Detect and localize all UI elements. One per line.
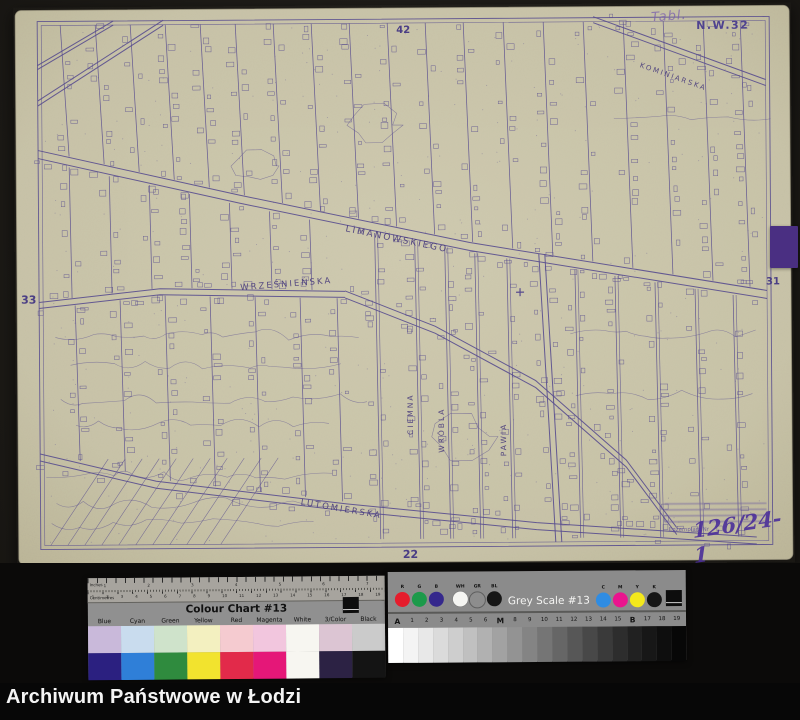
danes-picta-logo: [666, 590, 682, 606]
edge-number-bottom: 22: [403, 548, 418, 561]
grey-patch: [612, 626, 627, 661]
grey-scale-card: RGBWHGRBL Grey Scale #13 CMYK A123456M89…: [388, 570, 687, 662]
colour-chart-column: Black: [352, 615, 386, 678]
street-label: PAWIA: [499, 423, 508, 457]
cm-number: 14: [290, 592, 295, 597]
swatch-dark: [154, 652, 187, 679]
scale-label: 8: [508, 617, 523, 623]
swatch-dark: [121, 653, 154, 680]
grey-scale-patches: [388, 626, 686, 663]
scale-label: A: [390, 616, 405, 625]
scale-label: 6: [478, 617, 493, 623]
calibration-dot: M: [612, 585, 629, 607]
cm-number: 16: [324, 592, 329, 597]
calibration-dot: K: [646, 585, 663, 607]
cm-number: 8: [193, 593, 196, 598]
grey-patch: [656, 626, 671, 661]
map-sheet: LIMANOWSKIEGOWRZEŚNIEŃSKALUTOMIERSKAKOMI…: [13, 2, 795, 567]
cm-number: 9: [208, 593, 211, 598]
colour-chart-card: Inches Centimetres 1234567 1234567891011…: [88, 576, 386, 680]
dot-b: [429, 592, 444, 607]
street-label: CIEMNA: [406, 394, 415, 435]
grey-patch: [418, 628, 433, 663]
edge-number-right: 31: [766, 276, 780, 287]
swatch-dark: [88, 653, 121, 680]
archival-scan: LIMANOWSKIEGOWRZEŚNIEŃSKALUTOMIERSKAKOMI…: [0, 0, 800, 720]
calibration-dots-left: RGBWHGRBL: [394, 584, 503, 609]
colour-chart-column: Blue: [88, 617, 122, 680]
scale-label: 14: [596, 616, 611, 622]
ruler: Inches Centimetres 1234567 1234567891011…: [88, 576, 385, 604]
swatch-light: [319, 624, 352, 651]
scale-label: B: [625, 615, 640, 624]
colour-label: 3/Color: [319, 615, 352, 624]
swatch-dark: [253, 652, 286, 679]
colour-label: Cyan: [121, 617, 154, 626]
dot-label: BL: [491, 584, 497, 591]
scale-label: 13: [581, 617, 596, 623]
dot-y: [630, 592, 645, 607]
scale-label: 5: [464, 617, 479, 623]
colour-chart-column: Green: [154, 616, 188, 679]
scale-label: 4: [449, 618, 464, 624]
grey-patch: [522, 627, 537, 662]
colour-label: Green: [154, 616, 187, 625]
cm-number: 12: [256, 593, 261, 598]
inch-number: 3: [191, 582, 194, 587]
colour-label: White: [286, 615, 319, 624]
dot-gr: [469, 591, 486, 608]
grey-patch: [463, 627, 478, 662]
grey-patch: [433, 628, 448, 663]
inch-number: 2: [147, 583, 150, 588]
dot-c: [596, 592, 611, 607]
scale-label: M: [493, 616, 508, 625]
swatch-light: [352, 624, 385, 651]
grey-patch: [448, 628, 463, 663]
dot-label: WH: [456, 585, 465, 592]
grey-patch: [507, 627, 522, 662]
colour-chart-column: Red: [220, 616, 254, 679]
swatch-light: [187, 625, 220, 652]
swatch-light: [220, 625, 253, 652]
cm-number: 19: [375, 592, 380, 597]
calibration-dot: R: [394, 585, 411, 609]
cm-number: 10: [222, 593, 227, 598]
colour-label: Yellow: [187, 616, 220, 625]
swatch-dark: [187, 652, 220, 679]
dot-label: K: [653, 585, 657, 592]
cm-number: 3: [121, 594, 124, 599]
cm-number: 5: [150, 594, 153, 599]
inch-number: 5: [279, 582, 282, 587]
swatch-dark: [352, 651, 385, 678]
edge-number-top: 42: [396, 25, 410, 36]
cm-number: 2: [106, 594, 109, 599]
calibration-dots-right: CMYK: [595, 585, 663, 607]
scale-label: 2: [419, 618, 434, 624]
edge-number-left: 33: [21, 294, 36, 307]
calibration-dot: G: [411, 585, 428, 609]
grey-patch: [627, 626, 642, 661]
sheet-code: N.W.32: [696, 19, 749, 32]
dot-k: [647, 592, 662, 607]
cm-number: 11: [239, 593, 244, 598]
swatch-dark: [286, 651, 319, 678]
colour-chart-column: Yellow: [187, 616, 221, 679]
dot-label: G: [417, 585, 421, 592]
grey-patch: [403, 628, 418, 663]
dot-label: B: [435, 585, 438, 592]
caption-bar: Archiwum Państwowe w Łodzi: [0, 683, 800, 720]
grey-patch: [582, 627, 597, 662]
dot-wh: [453, 591, 468, 606]
colour-label: Red: [220, 616, 253, 625]
grey-patch: [567, 627, 582, 662]
city-map-svg: [13, 2, 795, 567]
swatch-light: [253, 625, 286, 652]
inch-number: 6: [322, 581, 325, 586]
dot-label: R: [401, 585, 405, 592]
grey-patch: [537, 627, 552, 662]
scale-label: 17: [640, 616, 655, 622]
colour-chart-column: Magenta: [253, 616, 287, 679]
cm-number: 13: [273, 593, 278, 598]
cm-number: 6: [164, 594, 167, 599]
colour-label: Black: [352, 615, 385, 624]
dot-r: [395, 592, 410, 607]
scale-label: 15: [611, 616, 626, 622]
swatch-light: [121, 626, 154, 653]
colour-swatches: BlueCyanGreenYellowRedMagentaWhite3/Colo…: [88, 615, 386, 681]
grey-patch: [552, 627, 567, 662]
dot-label: C: [602, 586, 605, 593]
scale-label: 18: [655, 616, 670, 622]
colour-chart-title: Colour Chart #13: [88, 601, 385, 618]
calibration-dot: GR: [469, 584, 486, 608]
danes-picta-logo: [343, 597, 359, 613]
colour-chart-column: Cyan: [121, 617, 155, 680]
dot-bl: [487, 591, 502, 606]
dot-m: [613, 592, 628, 607]
cm-number: 1: [92, 594, 95, 599]
inch-number: 4: [235, 582, 238, 587]
swatch-dark: [220, 652, 253, 679]
purple-marker-tab: [770, 226, 798, 268]
scale-label: 1: [405, 618, 420, 624]
scale-label: 12: [566, 617, 581, 623]
grey-patch: [671, 626, 686, 661]
grey-patch: [597, 626, 612, 661]
calibration-dot: Y: [629, 585, 646, 607]
calibration-dot: B: [428, 585, 445, 609]
cm-number: 15: [307, 592, 312, 597]
grey-patch: [641, 626, 656, 661]
grey-scale-title: Grey Scale #13: [503, 595, 595, 609]
cm-number: 4: [135, 594, 138, 599]
inch-number: 7: [366, 581, 369, 586]
handwritten-note: Tabl.: [651, 8, 688, 26]
cm-number: 18: [358, 592, 363, 597]
dot-label: Y: [636, 585, 639, 592]
colour-label: Magenta: [253, 616, 286, 625]
colour-label: Blue: [88, 617, 121, 626]
scale-label: 3: [434, 618, 449, 624]
calibration-dot: BL: [486, 584, 503, 608]
grey-patch: [478, 627, 493, 662]
swatch-light: [88, 626, 121, 653]
dot-g: [412, 592, 427, 607]
scale-label: 9: [522, 617, 537, 623]
dot-label: M: [618, 585, 623, 592]
scale-label: 10: [537, 617, 552, 623]
street-label: WRÓBLA: [437, 408, 446, 453]
scale-label: 11: [552, 617, 567, 623]
grey-patch: [492, 627, 507, 662]
swatch-light: [154, 625, 187, 652]
inch-number: 1: [104, 583, 107, 588]
dot-label: GR: [474, 584, 481, 591]
colour-chart-column: White: [286, 615, 320, 678]
swatch-dark: [319, 651, 352, 678]
cm-number: 7: [179, 593, 182, 598]
scale-label: 19: [669, 616, 684, 622]
swatch-light: [286, 624, 319, 651]
colour-chart-column: 3/Color: [319, 615, 353, 678]
calibration-dot: C: [595, 585, 612, 607]
calibration-dot: WH: [452, 584, 469, 608]
archive-caption: Archiwum Państwowe w Łodzi: [6, 686, 301, 709]
grey-patch: [388, 628, 403, 663]
